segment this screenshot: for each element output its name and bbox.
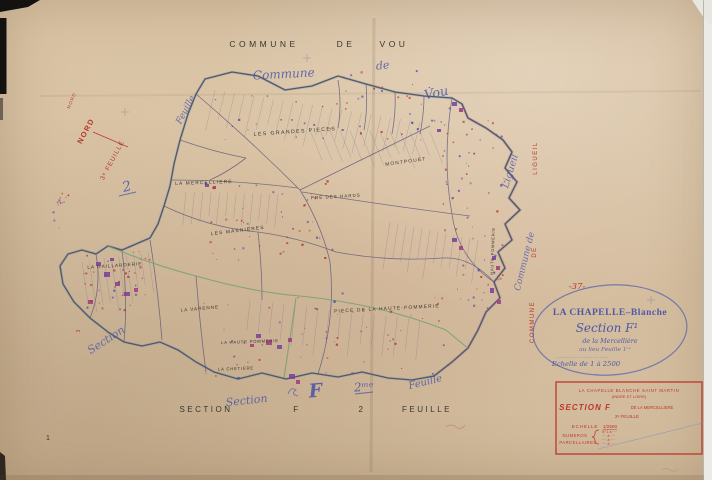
bottom-title-word-2: 2 [359, 405, 366, 414]
paraph-squiggle [288, 389, 298, 396]
stamp-echelle: Echelle de 1 à 2500 [551, 360, 621, 368]
script-two-nw: 2 [120, 178, 134, 196]
bottom-title-word-feuille: FEUILLE [402, 405, 452, 414]
top-title-word-de: DE [337, 39, 356, 49]
place-label-la-gaillarderie: LA GAILLARDERIE [87, 261, 142, 270]
legend-box: LA CHAPELLE BLANCHE SAINT MARTIN (INDRE … [556, 382, 711, 454]
stamp-lieu: de la Mercellière [582, 337, 637, 345]
script-vou: Vou [423, 84, 450, 104]
scanned-cadastral-map: COMMUNE DE VOU SECTION F 2 FEUILLE 1 LES… [0, 0, 712, 480]
legend-echelle-label: ECHELLE [572, 424, 599, 429]
script-f-big: F [307, 379, 325, 402]
corner-squiggle [662, 469, 678, 472]
nord-label-large: NORD [75, 116, 96, 145]
parcel-lines [90, 80, 494, 374]
page-number: 1 [46, 435, 50, 442]
feuille3-label: 3ᵉ FEUILLE [99, 139, 126, 181]
bottom-title-word-f: F [293, 405, 300, 414]
place-label-la-varenne: LA VARENNE [180, 304, 219, 312]
stamp-feuille: au lieu Feuille 1ʳᵉ [579, 347, 631, 353]
script-ligueil: Ligueil [500, 153, 521, 191]
nord-label-small: NORD [66, 92, 77, 110]
place-labels: LES GRANDES PIECES MONTPOUET LA MERCELLI… [87, 126, 496, 371]
place-label-montpouet: MONTPOUET [385, 156, 427, 168]
roads [108, 246, 468, 378]
legend-section: SECTION F [559, 403, 611, 412]
legend-numeros-label2: PARCELLAIRES [559, 440, 596, 445]
red-squiggle [446, 425, 465, 429]
legend-echelle-value: 1/2500 [603, 424, 617, 429]
stamp-section: Section F¹ [576, 321, 639, 335]
place-label-la-chetiere: LA CHETIERE [218, 365, 254, 371]
title-stamp: LA CHAPELLE–Blanche Section F¹ de la Mer… [530, 280, 690, 381]
script-commune-de-east: Commune de [513, 231, 537, 292]
legend-section-suffix: DE LA MERCELLIERE [631, 405, 674, 410]
cadastral-map-svg: COMMUNE DE VOU SECTION F 2 FEUILLE 1 LES… [0, 0, 712, 480]
top-title-word-vou: VOU [380, 39, 409, 49]
place-label-piece-haute-pommerie: PIECE DE LA HAUTE-POMMERIE [334, 303, 440, 315]
script-commune: Commune [253, 65, 315, 82]
script-feuille-se: Feuille [406, 373, 443, 392]
buildings [88, 102, 501, 384]
place-label-haute-pommerie-vertical: HAUTE POMMERIE [489, 227, 496, 275]
commune-vertical-ligueil: LIGUEIL [533, 141, 539, 175]
top-title-word-commune: COMMUNE [229, 39, 298, 49]
stamp-commune-name: LA CHAPELLE–Blanche [553, 308, 667, 318]
legend-feuille: 2ᵉ FEUILLE [615, 414, 639, 419]
legend-departement-line: (INDRE ET LOIRE) [612, 394, 647, 399]
bottom-title-word-section: SECTION [179, 405, 232, 414]
script-de: de [375, 58, 390, 72]
legend-commune-line: LA CHAPELLE BLANCHE SAINT MARTIN [579, 388, 680, 393]
place-label-pre-des-hards: PRE DES HARDS [311, 193, 361, 201]
section3-mark: 3 [76, 329, 82, 332]
place-label-les-masnieres: LES MASNIERES [211, 225, 266, 238]
script-section-bottom: Section [225, 392, 268, 409]
place-label-les-grandes-pieces: LES GRANDES PIECES [254, 126, 337, 138]
legend-numeros-label1: NUMEROS [563, 433, 588, 438]
printed-titles: COMMUNE DE VOU SECTION F 2 FEUILLE 1 [46, 39, 452, 442]
